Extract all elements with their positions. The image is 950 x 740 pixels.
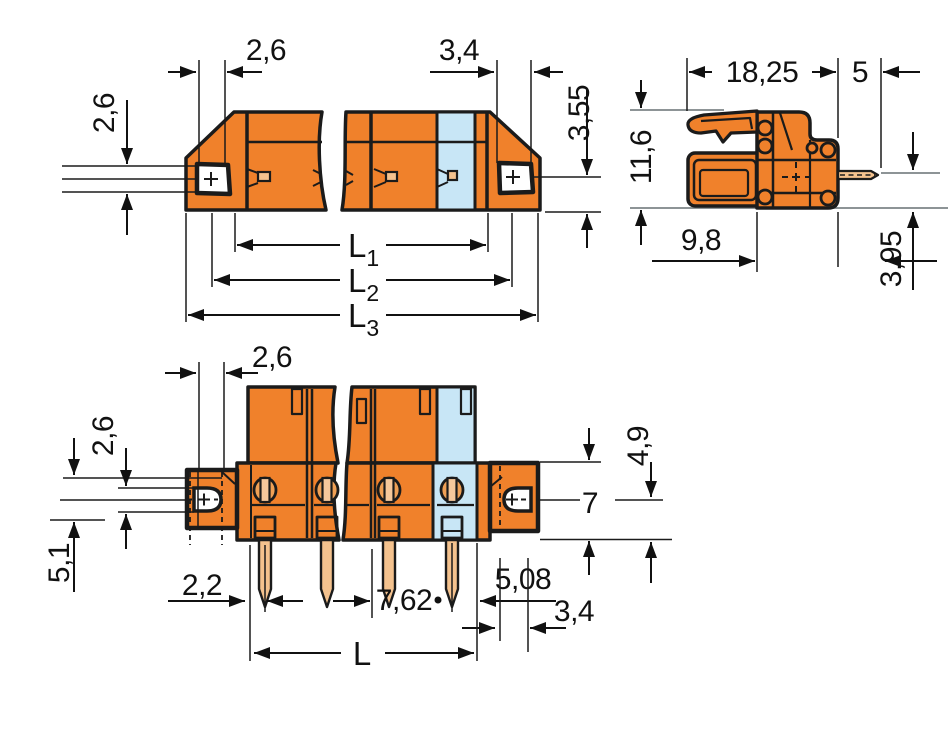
dim-bottom-flange-offset: 5,08 <box>495 563 551 596</box>
dim-front-side-height: 3,55 <box>563 85 596 141</box>
side-detail-circle <box>807 143 817 153</box>
dim-bottom-left-depth: 5,1 <box>43 543 76 583</box>
technical-drawing-page: 2,6 3,4 2,6 3,55 L1 L2 L3 <box>0 0 950 740</box>
dim-bottom-pin-pitch: 7,62 <box>376 584 432 617</box>
front-view: 2,6 3,4 2,6 3,55 L1 L2 L3 <box>62 34 601 341</box>
solder-pin-2 <box>321 540 333 607</box>
wire-entry-hole <box>316 478 338 502</box>
dim-bottom-edge-offset: 2,2 <box>182 569 222 602</box>
front-coding-strip-blue <box>437 112 475 210</box>
dim-bottom-top-width: 2,6 <box>252 341 292 374</box>
dim-front-hole-height: 2,6 <box>88 93 121 133</box>
side-detail-circle <box>758 139 772 153</box>
side-view: 18,25 5 11,6 9,8 3,95 <box>625 56 948 290</box>
connector-dimension-drawing: 2,6 3,4 2,6 3,55 L1 L2 L3 <box>0 0 950 740</box>
dim-bottom-flange-width: 3,4 <box>554 595 594 628</box>
dim-bottom-total-length: L <box>353 635 371 672</box>
bottom-view: 2,6 2,6 5,1 2,2 7,62 5,08 3,4 L <box>43 341 672 672</box>
dim-bottom-left-offset: 2,6 <box>87 416 120 456</box>
dim-side-height: 11,6 <box>625 130 658 184</box>
dim-front-top-width: 2,6 <box>246 34 286 67</box>
dim-side-pin-length: 5 <box>852 56 868 89</box>
side-detail-circle <box>821 191 835 205</box>
dim-bottom-flange-upper: 4,9 <box>622 426 655 466</box>
wire-entry-hole <box>378 478 400 502</box>
dim-side-depth: 18,25 <box>726 56 799 89</box>
pitch-reference-dot <box>435 597 442 604</box>
dim-side-pin-offset: 3,95 <box>875 231 908 287</box>
dim-side-lower-depth: 9,8 <box>681 224 721 257</box>
dim-front-top-width-right: 3,4 <box>439 34 479 67</box>
bottom-coding-strip-blue-upper <box>437 387 475 463</box>
latch-lever <box>688 111 757 142</box>
wire-entry-hole <box>254 478 276 502</box>
side-detail-circle <box>821 143 835 157</box>
side-detail-circle <box>758 190 772 204</box>
side-detail-circle <box>758 121 772 135</box>
dim-bottom-flange-height: 7 <box>582 487 598 520</box>
wire-entry-hole <box>441 478 463 502</box>
